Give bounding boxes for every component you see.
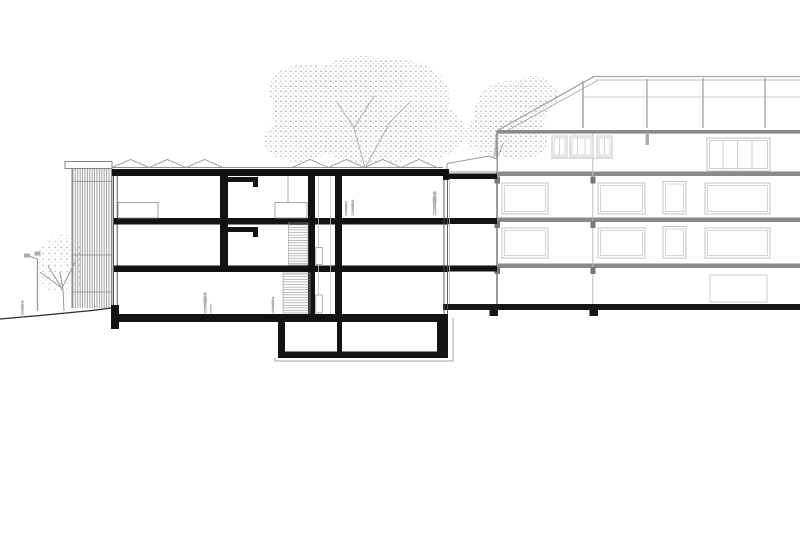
stairwell-wall-right <box>335 176 342 314</box>
stair-flight-mid <box>289 223 309 265</box>
ground-line <box>0 308 111 319</box>
planter-parapet <box>447 156 497 172</box>
bulkhead-mid <box>228 227 258 232</box>
facade-glazing <box>114 176 118 314</box>
basement-slab <box>278 352 448 359</box>
ground-floor-window <box>710 275 767 302</box>
link-slab-upper <box>448 218 497 224</box>
person-figure <box>351 200 354 217</box>
person-figure <box>203 292 207 313</box>
floor-slab-1 <box>114 266 445 273</box>
floor-slab-2 <box>114 218 445 225</box>
person-figure <box>345 201 347 216</box>
link-roof-slab <box>445 174 497 180</box>
person-outdoor <box>21 300 24 317</box>
upper-floor-windows <box>502 182 770 215</box>
roof-overhang <box>65 162 112 169</box>
roof-slab <box>112 169 445 176</box>
stair-flight-low <box>283 273 310 313</box>
core-door-ground <box>316 295 323 313</box>
person-figure-child <box>210 304 212 314</box>
adjacent-ground <box>443 304 800 316</box>
top-floor-fittings <box>118 203 307 219</box>
interior-wall <box>220 176 228 272</box>
section-drawing: Architectural building cross-section dra… <box>0 0 800 534</box>
section-building <box>65 160 453 362</box>
section-drawing-page: Architectural building cross-section dra… <box>0 0 800 534</box>
person-figure <box>272 297 275 314</box>
basement-wall-left <box>278 314 285 358</box>
basement-wall-mid <box>337 322 342 352</box>
roof-parapet-right <box>443 169 449 180</box>
attic-post-stub <box>646 134 650 145</box>
tree-canopy-small-right <box>465 76 558 160</box>
link-structure <box>445 134 497 304</box>
core-door-mid <box>316 248 323 265</box>
background-trees <box>264 56 558 168</box>
link-slab-lower <box>448 266 497 272</box>
person-figure <box>433 191 437 215</box>
basement-wall-right <box>437 314 448 358</box>
middle-floor-windows <box>502 227 770 259</box>
attic-windows <box>550 136 770 171</box>
bulkhead-top <box>228 177 258 182</box>
foundation-left <box>111 305 119 329</box>
stair-core <box>283 176 331 314</box>
right-curtain-wall <box>444 180 448 314</box>
cut-slabs-walls <box>111 169 449 358</box>
